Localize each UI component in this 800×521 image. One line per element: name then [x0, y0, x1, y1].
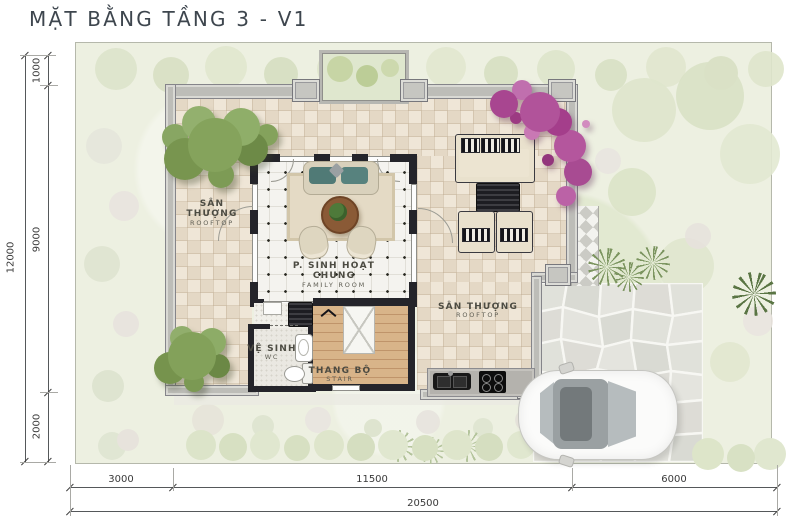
floor-plan: MẶT BẰNG TẦNG 3 - V1 — [0, 0, 800, 521]
dim-label-1000: 1000 — [32, 51, 43, 91]
pink-shrub-right — [595, 148, 621, 174]
sink-basin — [453, 376, 467, 388]
stair-wall-right — [408, 306, 415, 388]
planter-bushes — [327, 56, 353, 82]
dim-label-bottom-total: 20500 — [393, 498, 453, 509]
stair-wall-top — [313, 298, 417, 306]
tree-bottom-left — [168, 332, 216, 380]
stair-wall-bottom — [311, 384, 415, 391]
pillar-top-1 — [292, 79, 320, 102]
bougainvillea — [520, 92, 560, 132]
dim-label-2000: 2000 — [32, 407, 43, 447]
grass-tuft — [452, 430, 484, 462]
dim-line-bottom-segments — [70, 487, 777, 488]
wall-segment — [409, 210, 417, 234]
table-plant — [329, 203, 347, 221]
dim-line-left-total — [25, 55, 26, 462]
cooktop-burner — [494, 374, 503, 383]
cooktop-burner — [482, 383, 491, 392]
dim-label-9000: 9000 — [32, 220, 43, 260]
striped-cushion — [501, 138, 520, 153]
pillar-top-2 — [400, 79, 428, 102]
parapet-right-upper — [566, 84, 578, 278]
dim-line-bottom-total — [70, 511, 777, 512]
shrub-column-left — [86, 128, 122, 164]
wall-segment — [409, 154, 417, 184]
bush-row-bottom — [186, 430, 216, 460]
sink-basin — [437, 376, 451, 388]
stair-window — [332, 385, 360, 391]
striped-cushion — [461, 138, 480, 153]
room-label-wc: VỆ SINH WC — [242, 344, 302, 362]
cabinet — [263, 302, 282, 315]
grass-tuft — [383, 430, 415, 462]
faucet — [448, 371, 453, 376]
faded-canopy-right — [612, 78, 676, 142]
appliance — [288, 302, 313, 327]
room-label-stair: THANG BỘ STAIR — [300, 366, 380, 384]
wc-wall-top — [254, 324, 270, 329]
wc-door-dashed — [270, 325, 298, 326]
dim-ext — [40, 392, 58, 393]
faded-tree-row-top — [95, 48, 137, 90]
dim-ext — [572, 468, 573, 491]
dim-ext — [70, 465, 71, 516]
bush-row-right — [692, 438, 724, 470]
wall-segment — [250, 154, 258, 184]
dim-label-11500: 11500 — [342, 474, 402, 485]
cooktop-burner — [494, 383, 503, 392]
sofa-cushion — [341, 167, 368, 184]
palm-tuft — [636, 246, 670, 280]
parapet-bottom-left — [165, 385, 259, 396]
stair-void-panel — [343, 306, 375, 354]
outdoor-sofa-seat — [459, 149, 529, 177]
room-label-family-room: P. SINH HOẠT CHUNG FAMILY ROOM — [274, 261, 394, 289]
car-windshield — [608, 381, 636, 447]
palm-tuft-dark — [732, 272, 776, 316]
room-label-rooftop-left: SÂN THƯỢNG ROOFTOP — [172, 199, 252, 227]
dim-line-left-segments — [48, 55, 49, 462]
dim-label-6000: 6000 — [644, 474, 704, 485]
car-sunroof — [560, 387, 592, 441]
cooktop-burner — [482, 374, 491, 383]
tree-top-left — [188, 118, 242, 172]
dim-label-3000: 3000 — [91, 474, 151, 485]
dim-ext — [777, 465, 778, 516]
page-title: MẶT BẰNG TẦNG 3 - V1 — [29, 7, 309, 31]
room-label-rooftop-right: SÂN THƯỢNG ROOFTOP — [428, 302, 528, 320]
dim-ext — [20, 462, 56, 463]
dim-ext — [40, 85, 58, 86]
striped-cushion — [481, 138, 500, 153]
grass-tuft — [418, 437, 445, 464]
dim-label-left-total: 12000 — [6, 228, 17, 288]
wc-wall-bottom — [248, 386, 316, 392]
striped-cushion — [500, 228, 528, 242]
dim-ext — [173, 468, 174, 491]
outdoor-table — [476, 183, 520, 212]
striped-cushion — [462, 228, 490, 242]
pillar-notch — [545, 264, 571, 286]
